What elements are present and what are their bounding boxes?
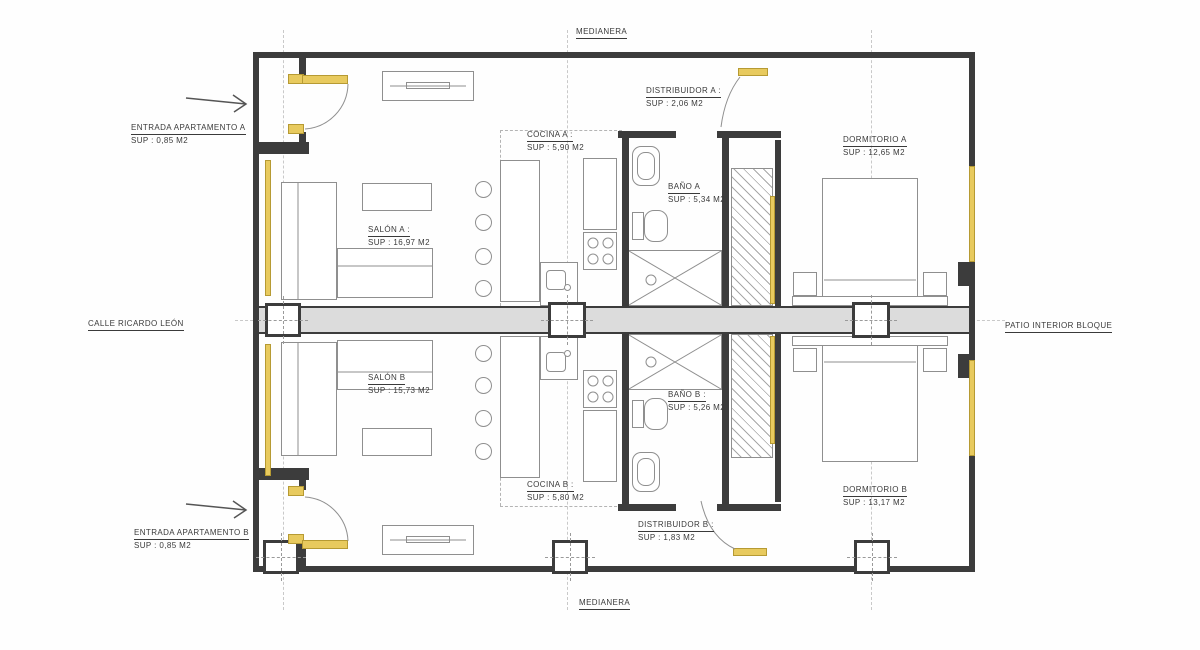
- boundary-label: CALLE RICARDO LEÓN: [88, 318, 184, 331]
- room-name: DISTRIBUIDOR B :: [638, 519, 714, 532]
- chair-b: [475, 410, 492, 427]
- chair-a: [475, 248, 492, 265]
- kitchen-boundary-b: [500, 506, 622, 507]
- label-medianera-bottom: MEDIANERA: [579, 597, 630, 610]
- room-label-cocina-b: COCINA B : SUP : 5,80 M2: [527, 479, 584, 503]
- wall-wardrobe-bedroom-b: [775, 334, 781, 502]
- wall-vestibule-a: [299, 52, 306, 76]
- room-area: SUP : 2,06 M2: [646, 98, 721, 109]
- wardrobe-door-a: [770, 196, 775, 304]
- sofa-a: [281, 182, 337, 300]
- chair-b: [475, 443, 492, 460]
- window-street-a: [265, 160, 271, 296]
- window-patio-a: [969, 166, 975, 262]
- chair-b: [475, 345, 492, 362]
- room-label-bano-b: BAÑO B : SUP : 5,26 M2: [668, 389, 725, 413]
- wall-vestibule-a: [253, 142, 309, 154]
- room-area: SUP : 5,26 M2: [668, 402, 725, 413]
- room-area: SUP : 15,73 M2: [368, 385, 430, 396]
- kitchen-faucet-a: [564, 284, 571, 291]
- sideboard-b-handle: [406, 536, 450, 543]
- room-area: SUP : 0,85 M2: [131, 135, 246, 146]
- room-name: DORMITORIO A: [843, 134, 907, 147]
- wall-bath-wardrobe-b: [722, 334, 729, 508]
- bath-sink-a-bowl: [637, 152, 655, 180]
- nightstand-b: [923, 348, 947, 372]
- boundary-label: MEDIANERA: [579, 597, 630, 610]
- room-area: SUP : 16,97 M2: [368, 237, 430, 248]
- room-label-entrada-a: ENTRADA APARTAMENTO A SUP : 0,85 M2: [131, 122, 246, 146]
- distribuidor-door-a-leaf: [738, 68, 768, 76]
- room-area: SUP : 5,34 M2: [668, 194, 725, 205]
- wardrobe-b: [731, 334, 773, 458]
- wall-distribuidor-a: [717, 131, 781, 138]
- nightstand-a: [923, 272, 947, 296]
- bath-sink-b-bowl: [637, 458, 655, 486]
- dining-counter-b: [500, 336, 540, 478]
- room-area: SUP : 5,80 M2: [527, 492, 584, 503]
- room-name: ENTRADA APARTAMENTO B: [134, 527, 249, 540]
- wall-kitchen-bath-a: [622, 134, 629, 308]
- wall-distribuidor-a: [618, 131, 676, 138]
- room-label-distribuidor-a: DISTRIBUIDOR A : SUP : 2,06 M2: [646, 85, 721, 109]
- nightstand-a: [793, 272, 817, 296]
- pillar: [854, 540, 890, 574]
- shower-a: [628, 250, 722, 306]
- wall-wardrobe-bedroom-a: [775, 140, 781, 308]
- pier-right-a: [958, 262, 975, 286]
- boundary-label: PATIO INTERIOR BLOQUE: [1005, 320, 1112, 333]
- pillar: [265, 303, 301, 337]
- room-name: ENTRADA APARTAMENTO A: [131, 122, 246, 135]
- room-area: SUP : 0,85 M2: [134, 540, 249, 551]
- kitchen-counter-b: [583, 410, 617, 482]
- stove-b: [583, 370, 617, 408]
- entrance-b-arrow: [186, 504, 246, 510]
- sideboard-a-handle: [406, 82, 450, 89]
- room-name: BAÑO B :: [668, 389, 706, 402]
- pillar: [548, 302, 586, 338]
- room-name: BAÑO A: [668, 181, 700, 194]
- entrance-a-arrow: [233, 95, 246, 112]
- nightstand-b: [793, 348, 817, 372]
- pillar: [852, 302, 890, 338]
- room-label-bano-a: BAÑO A SUP : 5,34 M2: [668, 181, 725, 205]
- stove-a: [583, 232, 617, 270]
- entrance-door-a-leaf: [302, 75, 348, 84]
- room-label-cocina-a: COCINA A : SUP : 5,90 M2: [527, 129, 584, 153]
- chair-a: [475, 181, 492, 198]
- entrance-a-arrow: [186, 98, 246, 104]
- room-label-salon-a: SALÓN A : SUP : 16,97 M2: [368, 224, 430, 248]
- door-jamb: [288, 124, 304, 134]
- room-name: SALÓN A :: [368, 224, 410, 237]
- room-label-dormitorio-a: DORMITORIO A SUP : 12,65 M2: [843, 134, 907, 158]
- toilet-a-bowl: [644, 210, 668, 242]
- toilet-b-bowl: [644, 398, 668, 430]
- wall-bath-wardrobe-a: [722, 134, 729, 308]
- chair-a: [475, 280, 492, 297]
- label-medianera-top: MEDIANERA: [576, 26, 627, 39]
- room-area: SUP : 5,90 M2: [527, 142, 584, 153]
- wardrobe-a: [731, 168, 773, 306]
- boundary-label: MEDIANERA: [576, 26, 627, 39]
- door-arc-entrance-a: [305, 84, 348, 129]
- wall-kitchen-bath-b: [622, 334, 629, 508]
- entrance-b-arrow: [233, 501, 246, 518]
- room-name: COCINA B :: [527, 479, 574, 492]
- wall-right-patio: [969, 52, 975, 572]
- label-street: CALLE RICARDO LEÓN: [88, 318, 184, 331]
- wall-left-facade: [253, 52, 259, 572]
- coffee-table-b: [362, 428, 432, 456]
- room-label-dormitorio-b: DORMITORIO B SUP : 13,17 M2: [843, 484, 907, 508]
- toilet-b-tank: [632, 400, 644, 428]
- toilet-a-tank: [632, 212, 644, 240]
- room-area: SUP : 12,65 M2: [843, 147, 907, 158]
- bed-a: [822, 178, 918, 298]
- label-patio: PATIO INTERIOR BLOQUE: [1005, 320, 1112, 333]
- room-area: SUP : 13,17 M2: [843, 497, 907, 508]
- floor-plan-canvas: MEDIANERA MEDIANERA CALLE RICARDO LEÓN P…: [0, 0, 1200, 650]
- kitchen-sink-a-basin: [546, 270, 566, 290]
- room-label-entrada-b: ENTRADA APARTAMENTO B SUP : 0,85 M2: [134, 527, 249, 551]
- room-name: DISTRIBUIDOR A :: [646, 85, 721, 98]
- room-label-salon-b: SALÓN B SUP : 15,73 M2: [368, 372, 430, 396]
- sofa-b: [281, 342, 337, 456]
- window-patio-b: [969, 360, 975, 456]
- room-name: DORMITORIO B: [843, 484, 907, 497]
- wall-top-medianera: [253, 52, 975, 58]
- shower-b: [628, 334, 722, 390]
- sofa-a: [337, 248, 433, 298]
- room-label-distribuidor-b: DISTRIBUIDOR B : SUP : 1,83 M2: [638, 519, 714, 543]
- pillar: [263, 540, 299, 574]
- wardrobe-door-b: [770, 336, 775, 444]
- door-jamb: [288, 486, 304, 496]
- entrance-door-b-leaf: [302, 540, 348, 549]
- wall-vestibule-b: [253, 468, 309, 480]
- door-arc-distribuidor-a: [721, 77, 740, 127]
- dining-counter-a: [500, 160, 540, 302]
- chair-a: [475, 214, 492, 231]
- kitchen-faucet-b: [564, 350, 571, 357]
- window-street-b: [265, 344, 271, 476]
- room-name: COCINA A :: [527, 129, 573, 142]
- wall-distribuidor-b: [717, 504, 781, 511]
- kitchen-sink-b-basin: [546, 352, 566, 372]
- chair-b: [475, 377, 492, 394]
- coffee-table-a: [362, 183, 432, 211]
- room-area: SUP : 1,83 M2: [638, 532, 714, 543]
- door-arc-entrance-b: [305, 497, 348, 541]
- distribuidor-door-b-leaf: [733, 548, 767, 556]
- pillar: [552, 540, 588, 574]
- kitchen-counter-a: [583, 158, 617, 230]
- wall-distribuidor-b: [618, 504, 676, 511]
- room-name: SALÓN B: [368, 372, 405, 385]
- bed-b: [822, 344, 918, 462]
